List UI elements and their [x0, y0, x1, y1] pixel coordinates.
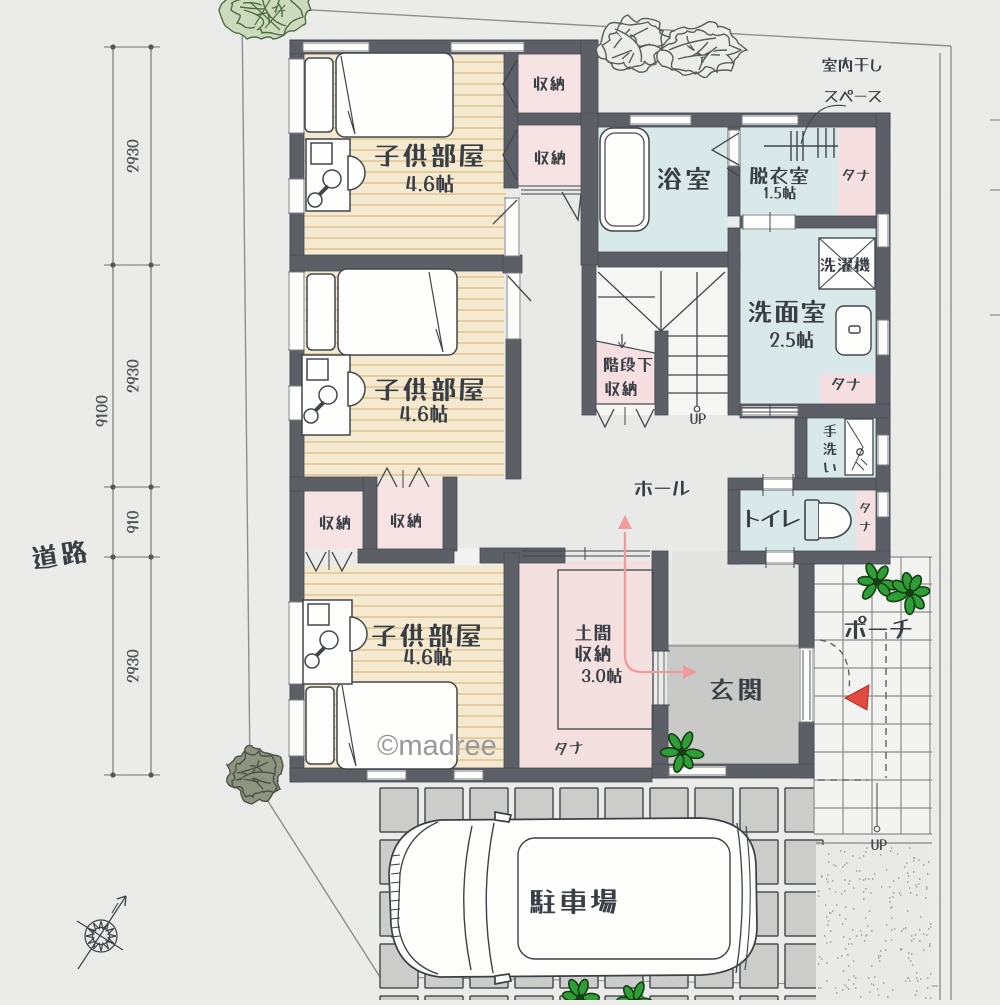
svg-text:©madree: ©madree	[377, 730, 497, 762]
